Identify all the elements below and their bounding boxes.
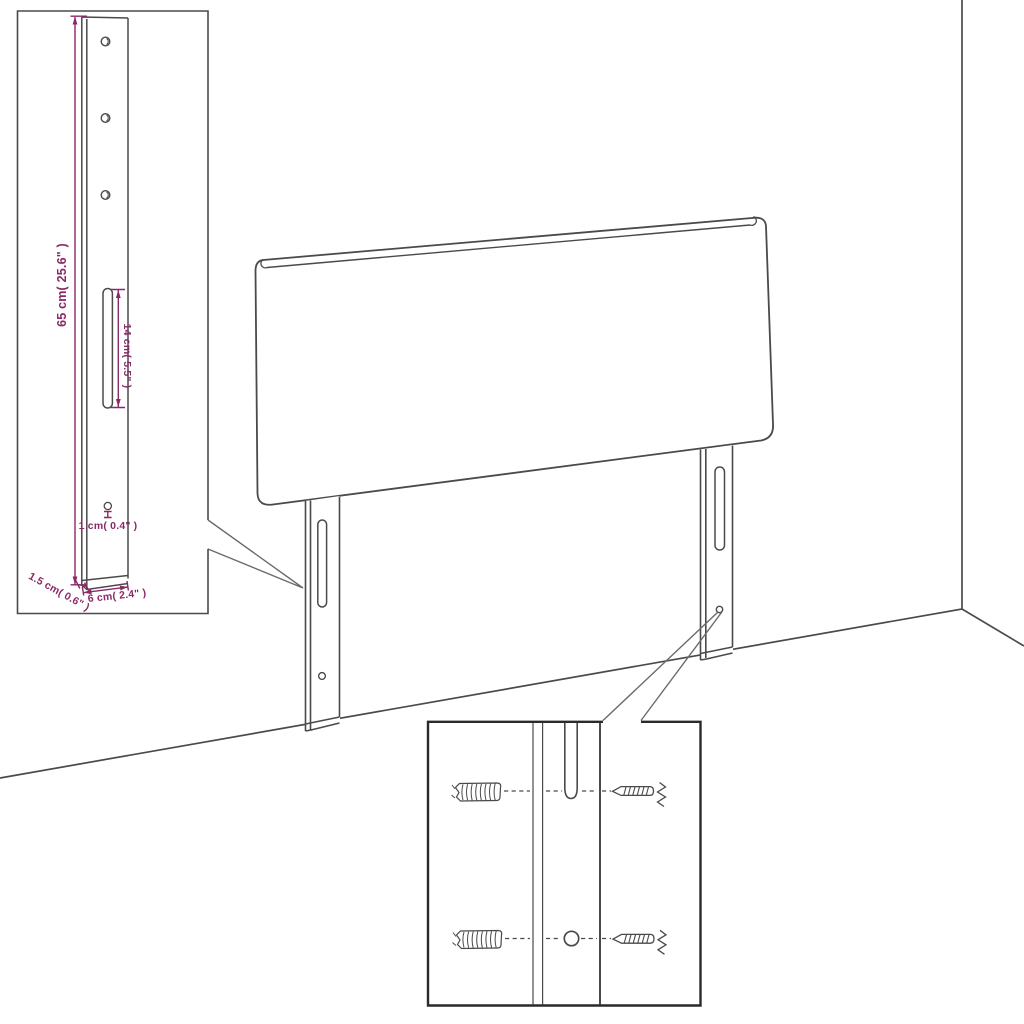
callout-lines bbox=[208, 520, 722, 721]
dimension-arrowheads bbox=[73, 17, 128, 595]
mount-inset-leg-strip bbox=[533, 723, 600, 1005]
panel-face bbox=[256, 218, 774, 505]
diagram-canvas: 65 cm( 25.6" ) 14 cm( 5.5" ) 1 cm( 0.4" … bbox=[0, 0, 1024, 1024]
dimension-label-slot: 14 cm( 5.5" ) bbox=[121, 324, 133, 389]
mount-inset-hole bbox=[564, 931, 578, 945]
inset-leg-holes bbox=[101, 37, 110, 199]
inset-leg-slot bbox=[103, 289, 112, 409]
headboard-panel bbox=[256, 217, 774, 505]
screw-icon bbox=[613, 783, 666, 807]
left-leg bbox=[305, 496, 340, 731]
mount-detail-inset bbox=[428, 722, 701, 1006]
wall-plug-icon bbox=[452, 783, 501, 801]
dimension-label-height: 65 cm( 25.6" ) bbox=[55, 243, 69, 327]
line-art bbox=[0, 0, 1024, 1024]
left-leg-slot bbox=[318, 520, 327, 607]
inset-leg-small-hole bbox=[104, 502, 111, 509]
floor-line bbox=[0, 609, 1024, 778]
right-leg bbox=[701, 445, 734, 660]
dimension-label-hole: 1 cm( 0.4" ) bbox=[79, 520, 138, 532]
right-leg-slot bbox=[715, 467, 725, 550]
leg-detail-callout bbox=[208, 520, 303, 588]
screw-turn-squiggle bbox=[658, 783, 666, 807]
left-leg-hole bbox=[319, 673, 326, 680]
dimension-lines bbox=[71, 16, 129, 595]
alignment-dashes bbox=[504, 791, 611, 939]
mount-inset-slot bbox=[565, 723, 577, 799]
